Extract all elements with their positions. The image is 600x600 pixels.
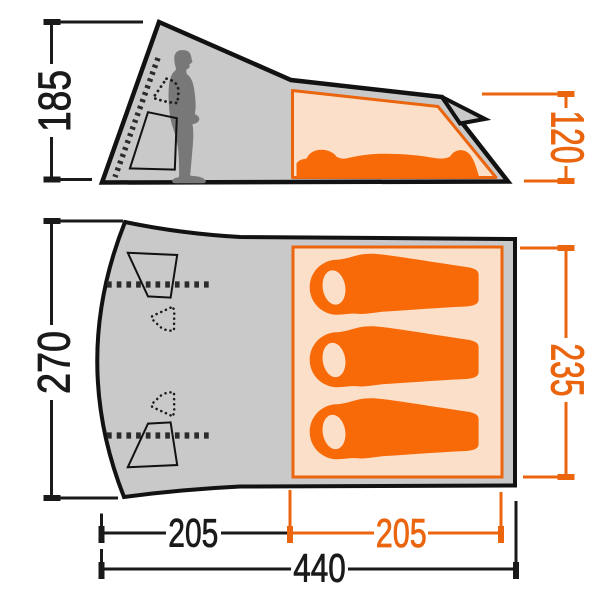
svg-text:185: 185 (29, 70, 80, 132)
svg-text:270: 270 (29, 331, 80, 394)
svg-text:235: 235 (542, 344, 594, 397)
svg-text:205: 205 (376, 510, 427, 556)
svg-text:120: 120 (542, 111, 594, 164)
svg-text:205: 205 (168, 512, 218, 556)
svg-text:440: 440 (293, 547, 346, 591)
